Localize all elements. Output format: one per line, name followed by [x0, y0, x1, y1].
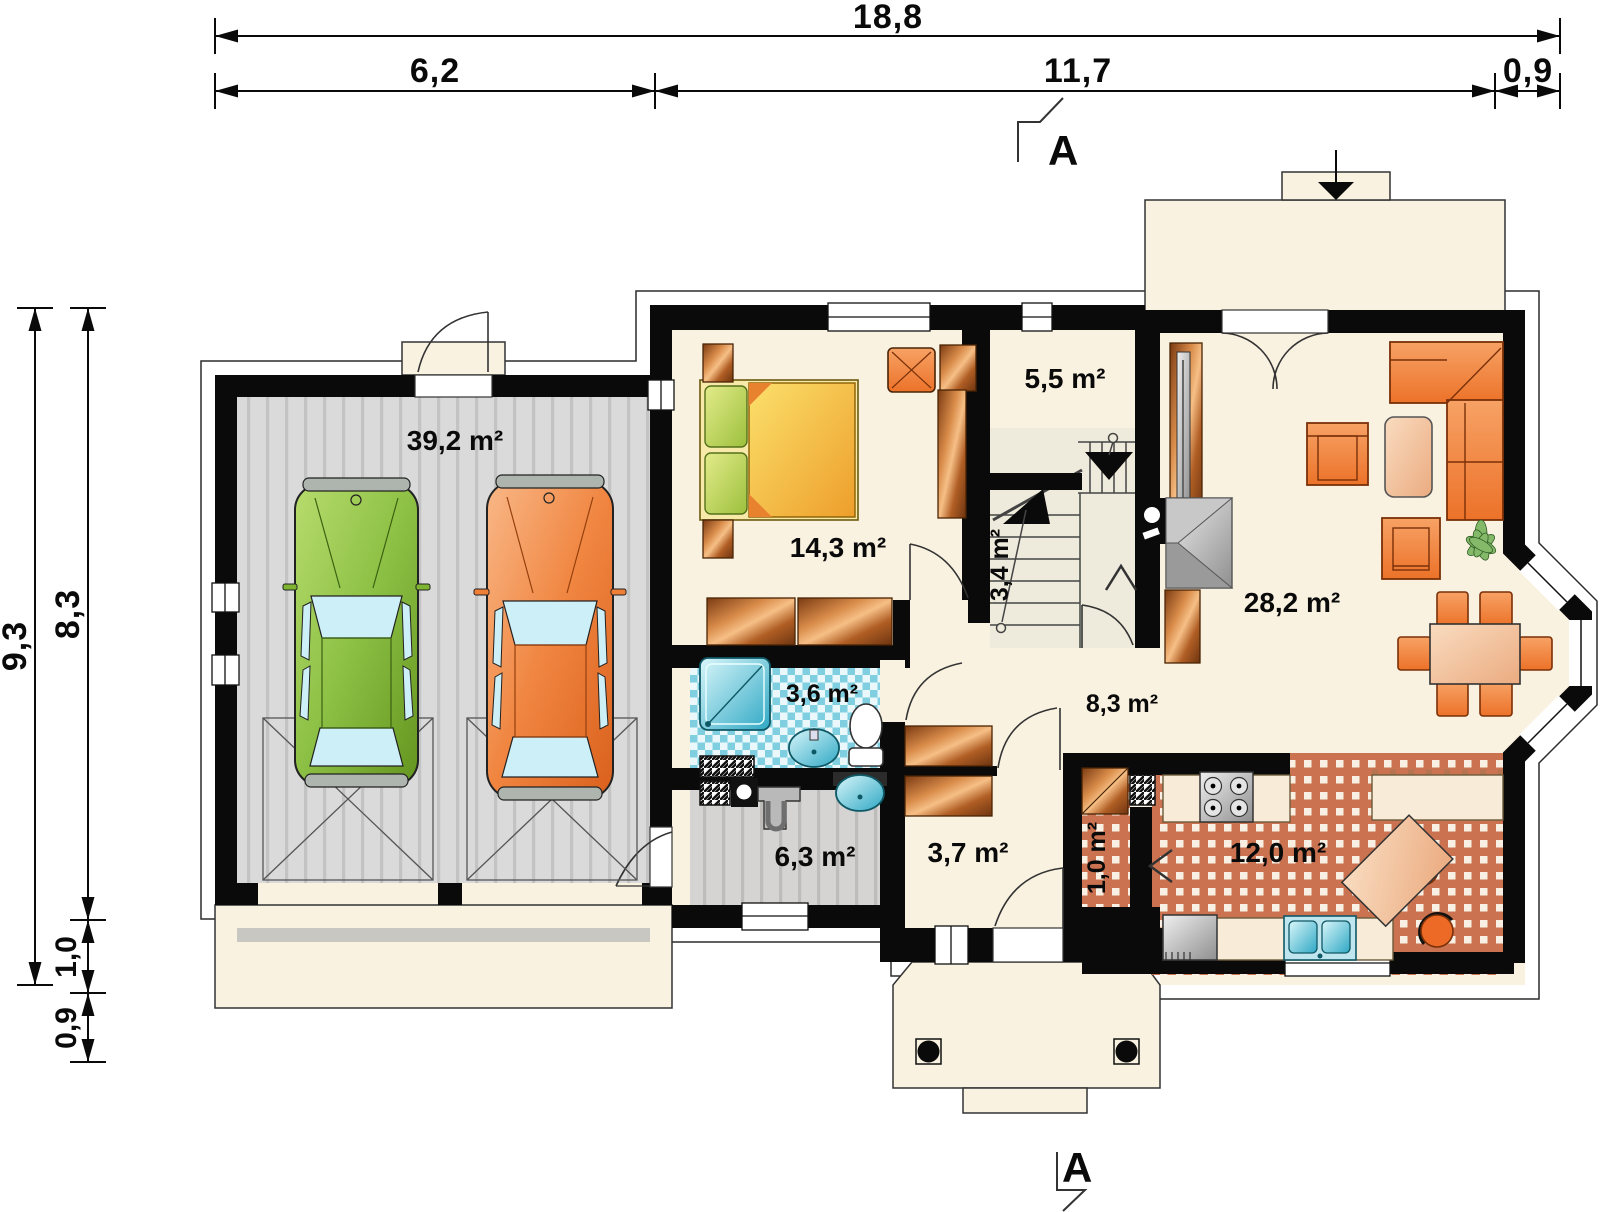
utility-area-label: 6,3 m² [775, 841, 856, 872]
dim-house-depth: 8,3 [49, 589, 87, 639]
bedroom-window [828, 303, 930, 331]
dim-porch-depth: 0,9 [50, 1007, 83, 1049]
dim-garage-width: 6,2 [410, 52, 460, 90]
living-wardrobe-icon [1170, 343, 1202, 520]
dim-total-depth: 9,3 [0, 621, 34, 671]
wardrobe-icon [938, 390, 966, 518]
section-letter-bottom: A [1062, 1144, 1092, 1191]
kitchen-sink-icon [1284, 916, 1356, 960]
stairs-area-label: 3,4 m² [986, 529, 1014, 601]
firewood-box-icon [1165, 590, 1200, 663]
washbasin-icon [789, 729, 839, 767]
utility-window [742, 903, 808, 930]
dim-bay-width: 0,9 [1503, 52, 1553, 90]
boiler-icon [700, 756, 758, 807]
kitchen-area-label: 12,0 m² [1230, 837, 1327, 868]
vestibule-area-label: 3,7 m² [928, 837, 1009, 868]
garage-door-stoop [402, 342, 505, 375]
hall-area-label: 8,3 m² [1086, 690, 1158, 718]
dim-total-width: 18,8 [853, 0, 923, 36]
bathroom-area-label: 3,6 m² [786, 680, 858, 708]
hall-wardrobe-icon [905, 776, 992, 816]
section-letter-top: A [1048, 127, 1078, 174]
living-area-label: 28,2 m² [1244, 587, 1341, 618]
armchair-icon [1307, 423, 1368, 485]
floor-plan: 18,8 6,2 11,7 0,9 9,3 8,3 1,0 0,9 A A [0, 0, 1600, 1212]
toilet-icon [849, 704, 883, 766]
gas-stove-icon [1200, 772, 1253, 822]
porch-column-icon [916, 1039, 941, 1064]
hall-wardrobe-icon [905, 726, 992, 766]
desk-chair-icon [888, 345, 976, 392]
stool-icon [1420, 914, 1453, 947]
garage-window [212, 655, 239, 685]
section-marker-top: A [1018, 98, 1078, 174]
coffee-table-icon [1385, 417, 1432, 497]
fridge-icon [1163, 915, 1217, 960]
shower-icon [700, 658, 770, 730]
vestibule-window [935, 926, 968, 964]
pantry-area-label: 1,0 m² [1083, 822, 1111, 894]
porch-column-icon [1114, 1039, 1139, 1064]
floor-plan-drawing: 18,8 6,2 11,7 0,9 9,3 8,3 1,0 0,9 A A [0, 0, 1600, 1212]
bedroom-area-label: 14,3 m² [790, 532, 887, 563]
garage-apron [215, 905, 672, 1008]
dim-step-depth: 1,0 [50, 936, 83, 978]
bedroom-side-window [648, 380, 674, 410]
armchair-icon [1382, 518, 1440, 579]
nightstand-icon [703, 520, 733, 558]
nightstand-icon [703, 344, 733, 382]
car-green-icon [283, 478, 430, 787]
dresser-icon [707, 598, 892, 645]
terrace [1145, 150, 1505, 313]
garage-area-label: 39,2 m² [407, 425, 504, 456]
utility-washbasin-icon [833, 772, 887, 811]
dim-house-width: 11,7 [1044, 52, 1112, 90]
entrance-porch [893, 962, 1160, 1113]
storage-area-label: 5,5 m² [1025, 363, 1106, 394]
section-marker-bottom: A [1057, 1144, 1092, 1211]
pantry-cupboard-icon [1082, 768, 1128, 814]
hall-window [1022, 303, 1052, 331]
car-orange-icon [474, 475, 626, 800]
garage-window [212, 583, 239, 612]
kitchen-heater-icon [1130, 775, 1155, 805]
double-bed-icon [700, 380, 858, 520]
